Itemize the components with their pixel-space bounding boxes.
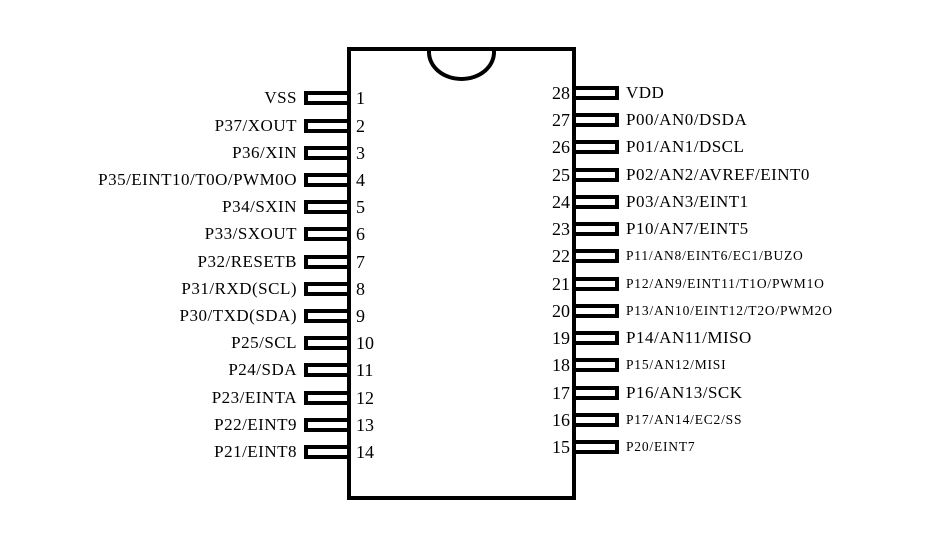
pin-number: 17 (540, 384, 570, 402)
pin-stub (572, 86, 619, 100)
pin-row: P21/EINT814 (0, 438, 430, 465)
pin-stub (304, 418, 351, 432)
pin-label: P16/AN13/SCK (626, 384, 743, 401)
pin-row: 22P11/AN8/EINT6/EC1/BUZO (540, 242, 930, 269)
pin-row: 28VDD (540, 79, 930, 106)
pin-number: 15 (540, 438, 570, 456)
pin-label: P23/EINTA (0, 389, 297, 406)
pin-number: 7 (356, 253, 365, 271)
pin-number: 26 (540, 138, 570, 156)
pin-stub (304, 445, 351, 459)
pin-label: P20/EINT7 (626, 440, 695, 454)
pin-row: 18P15/AN12/MISI (540, 351, 930, 378)
pin-stub (304, 119, 351, 133)
pin-row: 20P13/AN10/EINT12/T2O/PWM2O (540, 297, 930, 324)
pin-stub (304, 173, 351, 187)
pin-row: 15P20/EINT7 (540, 433, 930, 460)
pin-row: 17P16/AN13/SCK (540, 379, 930, 406)
pin-stub (572, 304, 619, 318)
pin-row: 24P03/AN3/EINT1 (540, 188, 930, 215)
pin-number: 1 (356, 89, 365, 107)
pin-number: 20 (540, 302, 570, 320)
pin-stub (304, 391, 351, 405)
pin-stub (572, 386, 619, 400)
pin-stub (572, 140, 619, 154)
pin-row: P34/SXIN5 (0, 193, 430, 220)
pin-stub (304, 363, 351, 377)
pin-stub (572, 168, 619, 182)
pin-row: 25P02/AN2/AVREF/EINT0 (540, 161, 930, 188)
pin-label: P25/SCL (0, 334, 297, 351)
pin-row: P36/XIN3 (0, 139, 430, 166)
pin-row: P24/SDA11 (0, 356, 430, 383)
pin-label: P24/SDA (0, 361, 297, 378)
pin-stub (572, 413, 619, 427)
pin-row: P31/RXD(SCL)8 (0, 275, 430, 302)
pin-label: P10/AN7/EINT5 (626, 220, 749, 237)
pin-row: 26P01/AN1/DSCL (540, 133, 930, 160)
pin-row: P30/TXD(SDA)9 (0, 302, 430, 329)
pin-number: 16 (540, 411, 570, 429)
pin-label: P35/EINT10/T0O/PWM0O (0, 171, 297, 188)
pin-label: P02/AN2/AVREF/EINT0 (626, 166, 810, 183)
pin-number: 28 (540, 84, 570, 102)
pin-number: 13 (356, 416, 374, 434)
pin-number: 19 (540, 329, 570, 347)
pin-label: P13/AN10/EINT12/T2O/PWM2O (626, 304, 833, 318)
pin-row: P37/XOUT2 (0, 112, 430, 139)
pin-stub (304, 309, 351, 323)
pin-number: 23 (540, 220, 570, 238)
pin-stub (572, 222, 619, 236)
pin-stub (572, 358, 619, 372)
pin-label: P32/RESETB (0, 253, 297, 270)
pin-row: VSS1 (0, 84, 430, 111)
pin-row: 19P14/AN11/MISO (540, 324, 930, 351)
pinout-diagram: VSS1 P37/XOUT2 P36/XIN3 P35/EINT10/T0O/P… (0, 0, 930, 549)
pin-label: P11/AN8/EINT6/EC1/BUZO (626, 249, 804, 263)
pin-stub (572, 249, 619, 263)
pin-row: P22/EINT913 (0, 411, 430, 438)
pin-label: P01/AN1/DSCL (626, 138, 744, 155)
pin-stub (304, 282, 351, 296)
pin-stub (572, 277, 619, 291)
pin-stub (572, 195, 619, 209)
pin-label: P30/TXD(SDA) (0, 307, 297, 324)
pin-number: 2 (356, 117, 365, 135)
pin-number: 27 (540, 111, 570, 129)
pin-stub (304, 227, 351, 241)
pin-number: 25 (540, 166, 570, 184)
pin-label: P34/SXIN (0, 198, 297, 215)
pin-number: 8 (356, 280, 365, 298)
pin-number: 11 (356, 361, 373, 379)
pin-row: P35/EINT10/T0O/PWM0O4 (0, 166, 430, 193)
pin-label: P03/AN3/EINT1 (626, 193, 749, 210)
pin-label: P15/AN12/MISI (626, 358, 726, 372)
pin-number: 12 (356, 389, 374, 407)
pin-row: 16P17/AN14/EC2/SS (540, 406, 930, 433)
pin-number: 21 (540, 275, 570, 293)
pin-label: P22/EINT9 (0, 416, 297, 433)
pin-stub (572, 113, 619, 127)
pin-label: P31/RXD(SCL) (0, 280, 297, 297)
pin-label: P33/SXOUT (0, 225, 297, 242)
pin-number: 18 (540, 356, 570, 374)
pin-stub (572, 331, 619, 345)
pin-row: P25/SCL10 (0, 329, 430, 356)
pin-row: P32/RESETB7 (0, 248, 430, 275)
pin-stub (572, 440, 619, 454)
pin-row: 23P10/AN7/EINT5 (540, 215, 930, 242)
pin-stub (304, 255, 351, 269)
pin-row: P23/EINTA12 (0, 384, 430, 411)
pin-stub (304, 200, 351, 214)
pin-number: 3 (356, 144, 365, 162)
pin-label: P21/EINT8 (0, 443, 297, 460)
pin-number: 14 (356, 443, 374, 461)
pin-label: P12/AN9/EINT11/T1O/PWM1O (626, 277, 825, 291)
pin-label: P17/AN14/EC2/SS (626, 413, 742, 427)
pin-number: 5 (356, 198, 365, 216)
pin-number: 24 (540, 193, 570, 211)
pin-number: 10 (356, 334, 374, 352)
pin-label: VDD (626, 84, 664, 101)
pin-stub (304, 336, 351, 350)
pin-stub (304, 91, 351, 105)
pin-number: 22 (540, 247, 570, 265)
pin-label: P14/AN11/MISO (626, 329, 752, 346)
pin-number: 9 (356, 307, 365, 325)
pin-number: 6 (356, 225, 365, 243)
pin-label: VSS (0, 89, 297, 106)
pin-label: P36/XIN (0, 144, 297, 161)
pin-row: P33/SXOUT6 (0, 220, 430, 247)
pin-label: P00/AN0/DSDA (626, 111, 747, 128)
pin-number: 4 (356, 171, 365, 189)
pin-row: 27P00/AN0/DSDA (540, 106, 930, 133)
pin-stub (304, 146, 351, 160)
pin-label: P37/XOUT (0, 117, 297, 134)
pin-row: 21P12/AN9/EINT11/T1O/PWM1O (540, 270, 930, 297)
